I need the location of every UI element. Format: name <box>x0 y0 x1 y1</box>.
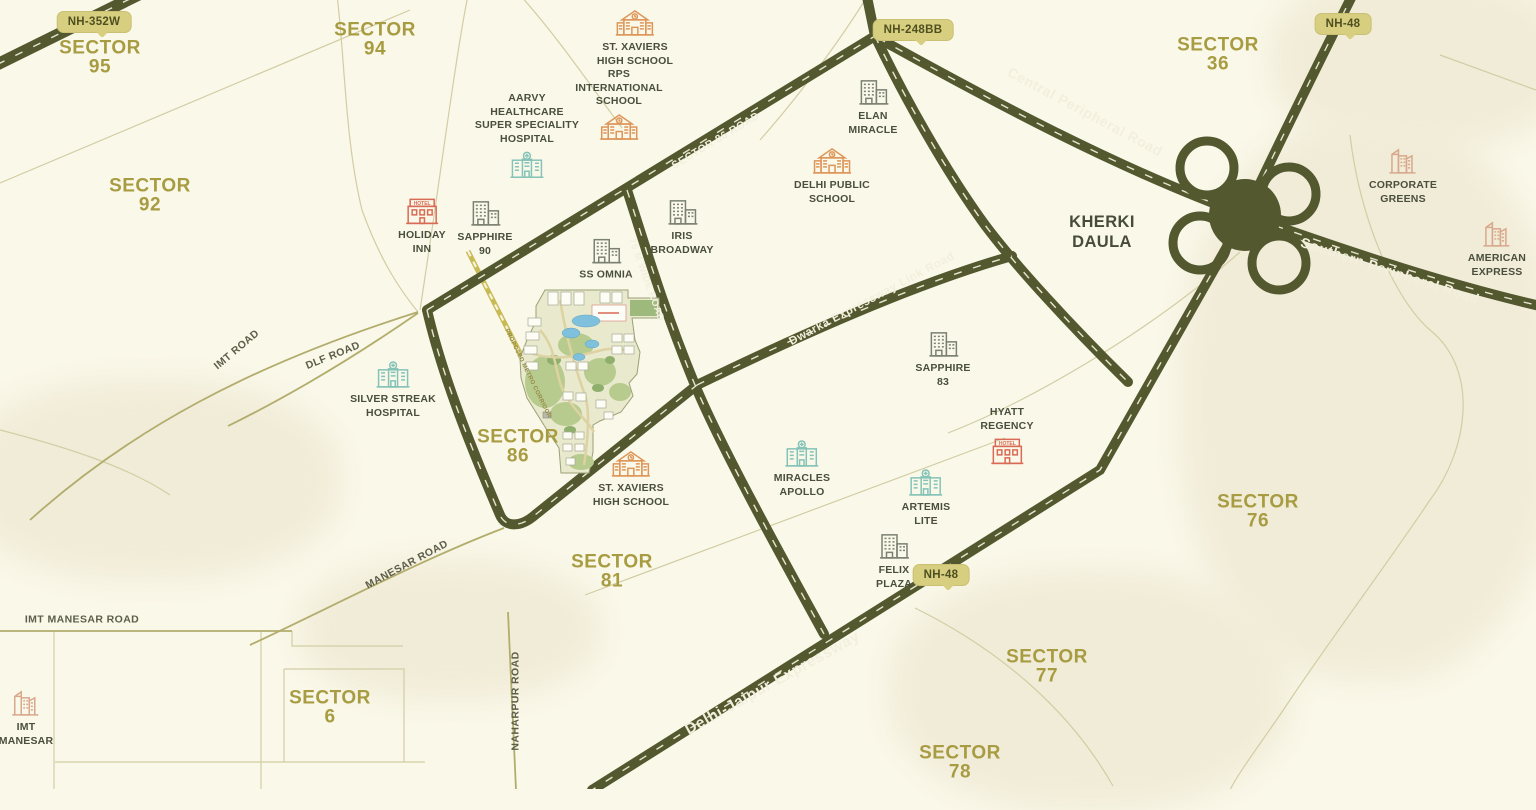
road-dashes <box>0 0 1536 789</box>
landmark-label: CORPORATE GREENS <box>1369 179 1437 206</box>
sector-word: SECTOR <box>477 428 559 447</box>
school-icon <box>812 146 852 176</box>
sector-boundaries <box>0 0 1536 789</box>
sector-label-77: SECTOR77 <box>1006 648 1088 687</box>
cloverleaf-interchange <box>1173 141 1316 290</box>
sector-label-95: SECTOR95 <box>59 39 141 78</box>
landmark-iris-broadway[interactable]: IRIS BROADWAY <box>650 197 713 257</box>
landmark-label: AMERICAN EXPRESS <box>1468 252 1526 279</box>
sector-word: SECTOR <box>1177 36 1259 55</box>
landmark-st-xaviers-high-school-bottom[interactable]: ST. XAVIERS HIGH SCHOOL <box>593 449 669 509</box>
highway-badge-nh-48[interactable]: NH-48 <box>913 564 970 586</box>
road-label-imt-manesar-road: IMT MANESAR ROAD <box>25 614 139 627</box>
landmark-felix-plaza[interactable]: FELIX PLAZA <box>874 531 914 591</box>
landmark-label: HYATT REGENCY <box>980 406 1033 433</box>
major-roads <box>0 0 1536 789</box>
sector-number: 77 <box>1006 667 1088 686</box>
landmark-holiday-inn[interactable]: HOTELHOLIDAY INN <box>398 196 446 256</box>
landmark-label: AARVY HEALTHCARE SUPER SPECIALITY HOSPIT… <box>475 92 579 147</box>
sector-word: SECTOR <box>334 21 416 40</box>
hospital-icon <box>373 360 413 390</box>
sector-word: SECTOR <box>289 689 371 708</box>
kherki-daula-bypass <box>875 36 1128 382</box>
sector-number: 36 <box>1177 55 1259 74</box>
landmark-american-express[interactable]: AMERICAN EXPRESS <box>1468 219 1526 279</box>
sector-word: SECTOR <box>1217 493 1299 512</box>
landmark-miracles-apollo[interactable]: MIRACLES APOLLO <box>774 439 830 499</box>
landmark-label: FELIX PLAZA <box>876 564 912 591</box>
sector-number: 76 <box>1217 512 1299 531</box>
hotel-icon: HOTEL <box>987 436 1027 466</box>
school-icon <box>615 8 655 38</box>
landmark-sapphire-83[interactable]: SAPPHIRE 83 <box>915 329 970 389</box>
landmark-elan-miracle[interactable]: ELAN MIRACLE <box>848 77 897 137</box>
sector-label-86: SECTOR86 <box>477 428 559 467</box>
landmark-label: DELHI PUBLIC SCHOOL <box>794 179 870 206</box>
hotel-icon: HOTEL <box>402 196 442 226</box>
sector-word: SECTOR <box>59 39 141 58</box>
towers-icon <box>923 329 963 359</box>
map-canvas <box>0 0 1536 789</box>
sector-number: 78 <box>919 763 1001 782</box>
landmark-label: IRIS BROADWAY <box>650 230 713 257</box>
location-map: NH-352WNH-248BBNH-48NH-48SECTOR95SECTOR9… <box>0 0 1536 789</box>
landmark-delhi-public-school[interactable]: DELHI PUBLIC SCHOOL <box>794 146 870 206</box>
sector-number: 95 <box>59 58 141 77</box>
landmark-silver-streak-hospital[interactable]: SILVER STREAK HOSPITAL <box>350 360 436 420</box>
hospital-icon <box>507 150 547 180</box>
landmark-imt-manesar[interactable]: IMT MANESAR <box>0 688 53 748</box>
landmark-label: MIRACLES APOLLO <box>774 472 830 499</box>
landmark-st-xaviers-high-school-top[interactable]: ST. XAVIERS HIGH SCHOOL <box>597 8 673 68</box>
sector-number: 6 <box>289 708 371 727</box>
hospital-icon <box>782 439 822 469</box>
towers-icon <box>586 236 626 266</box>
corporate-icon <box>6 688 46 718</box>
sector-number: 81 <box>571 572 653 591</box>
landmark-label: ST. XAVIERS HIGH SCHOOL <box>593 482 669 509</box>
landmark-label: SS OMNIA <box>579 269 633 283</box>
sector-word: SECTOR <box>1006 648 1088 667</box>
landmark-label: HOLIDAY INN <box>398 229 446 256</box>
towers-icon <box>874 531 914 561</box>
sector-number: 86 <box>477 447 559 466</box>
nh48-delhi-jaipur-expressway <box>592 0 1355 789</box>
towers-icon <box>853 77 893 107</box>
landmark-label: RPS INTERNATIONAL SCHOOL <box>575 68 663 109</box>
sector-label-76: SECTOR76 <box>1217 493 1299 532</box>
hotel-sign-text: HOTEL <box>414 201 431 207</box>
landmark-aarvy-healthcare-hospital[interactable]: AARVY HEALTHCARE SUPER SPECIALITY HOSPIT… <box>475 92 579 180</box>
sector-label-36: SECTOR36 <box>1177 36 1259 75</box>
highway-badge-nh-48[interactable]: NH-48 <box>1315 13 1372 35</box>
sector-label-6: SECTOR6 <box>289 689 371 728</box>
hospital-icon <box>906 468 946 498</box>
area-label: KHERKI DAULA <box>1069 212 1135 252</box>
landmark-label: ELAN MIRACLE <box>848 110 897 137</box>
school-icon <box>611 449 651 479</box>
landmark-rps-international-school[interactable]: RPS INTERNATIONAL SCHOOL <box>575 68 663 142</box>
sector-word: SECTOR <box>919 744 1001 763</box>
towers-icon <box>662 197 702 227</box>
corporate-icon <box>1477 219 1517 249</box>
landmark-label: IMT MANESAR <box>0 721 53 748</box>
landmark-artemis-lite[interactable]: ARTEMIS LITE <box>902 468 951 528</box>
sector-label-81: SECTOR81 <box>571 553 653 592</box>
road-label-naharpur-road: NAHARPUR ROAD <box>510 651 523 750</box>
school-icon <box>599 112 639 142</box>
landmark-hyatt-regency[interactable]: HYATT REGENCYHOTEL <box>980 406 1033 466</box>
landmark-label: ST. XAVIERS HIGH SCHOOL <box>597 41 673 68</box>
landmark-sapphire-90[interactable]: SAPPHIRE 90 <box>457 198 512 258</box>
sector-word: SECTOR <box>571 553 653 572</box>
landmark-label: SAPPHIRE 83 <box>915 362 970 389</box>
sector-word: SECTOR <box>109 177 191 196</box>
sector-number: 92 <box>109 196 191 215</box>
sector-label-92: SECTOR92 <box>109 177 191 216</box>
highway-badge-nh-248bb[interactable]: NH-248BB <box>873 19 954 41</box>
landmark-corporate-greens[interactable]: CORPORATE GREENS <box>1369 146 1437 206</box>
landmark-label: SILVER STREAK HOSPITAL <box>350 393 436 420</box>
towers-icon <box>465 198 505 228</box>
sector-number: 94 <box>334 40 416 59</box>
hotel-sign-text: HOTEL <box>999 441 1016 447</box>
sector-label-94: SECTOR94 <box>334 21 416 60</box>
sector-label-78: SECTOR78 <box>919 744 1001 783</box>
landmark-ss-omnia[interactable]: SS OMNIA <box>579 236 633 283</box>
corporate-icon <box>1383 146 1423 176</box>
landmark-label: ARTEMIS LITE <box>902 501 951 528</box>
highway-badge-nh-352w[interactable]: NH-352W <box>57 11 132 33</box>
landmark-label: SAPPHIRE 90 <box>457 231 512 258</box>
